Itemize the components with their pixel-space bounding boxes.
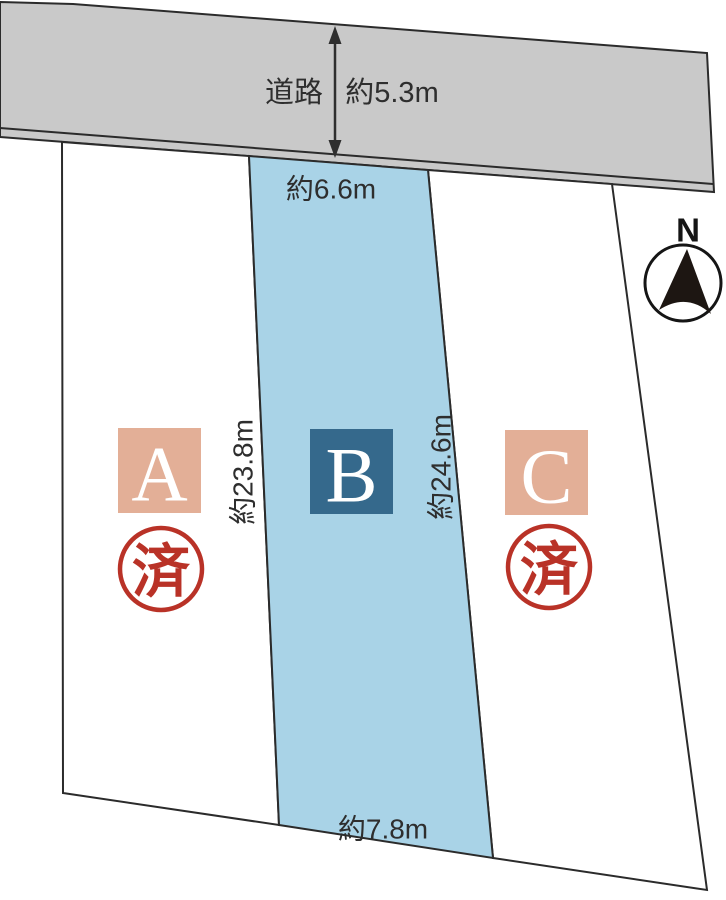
plot-diagram: 道路 約5.3m 約6.6m 約23.8m 約24.6m 約7.8m A B C… (0, 0, 726, 900)
sold-stamp-c-text: 済 (520, 538, 579, 603)
plot-c-letter: C (520, 433, 572, 520)
left-depth-label: 約23.8m (228, 419, 259, 525)
sold-stamp-a-text: 済 (132, 540, 191, 605)
plot-a-letter: A (131, 431, 187, 518)
sold-stamp-c: 済 (508, 526, 590, 608)
rear-width-label: 約7.8m (338, 814, 428, 845)
compass: N (645, 212, 721, 322)
road-width-label: 約5.3m (345, 76, 438, 109)
sold-stamp-a: 済 (120, 528, 202, 610)
compass-n-label: N (676, 212, 700, 249)
road-label: 道路 (265, 76, 323, 109)
diagram-canvas: 道路 約5.3m 約6.6m 約23.8m 約24.6m 約7.8m A B C… (0, 0, 726, 900)
right-depth-label: 約24.6m (426, 414, 457, 520)
frontage-label: 約6.6m (286, 174, 376, 205)
plot-b-letter: B (325, 432, 377, 519)
